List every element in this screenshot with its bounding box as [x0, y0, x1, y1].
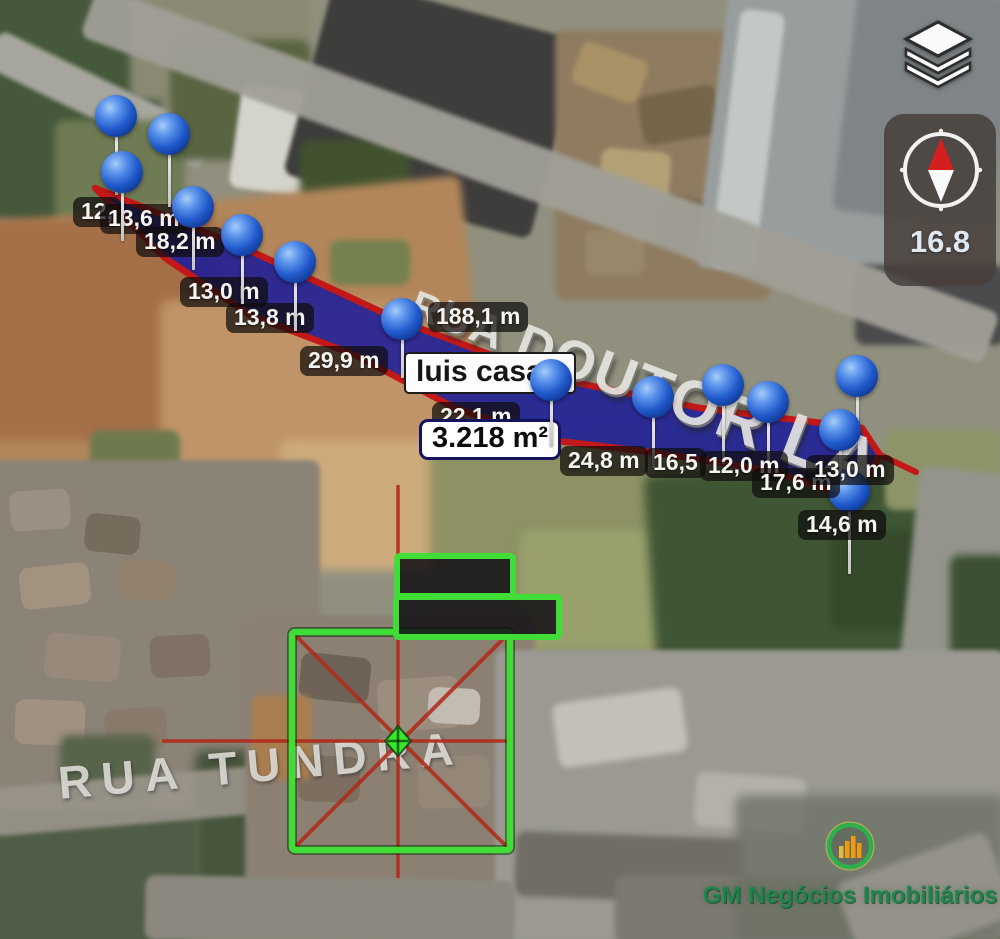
pin-head: [819, 409, 861, 451]
distance-label: 18,2 m: [136, 227, 224, 257]
terrain-patch: [144, 875, 515, 939]
terrain-patch: [83, 512, 142, 556]
watermark-logo-icon: [824, 820, 876, 872]
pin-head: [381, 298, 423, 340]
layers-button[interactable]: [898, 16, 978, 90]
pin-head: [148, 113, 190, 155]
pin-head: [836, 355, 878, 397]
pin-head: [101, 151, 143, 193]
terrain-patch: [330, 240, 410, 285]
pin-head: [95, 95, 137, 137]
compass-bearing: 16.8: [884, 224, 996, 260]
distance-label: 13,0 m: [806, 455, 894, 485]
pin-head: [530, 359, 572, 401]
distance-label: 14,6 m: [798, 510, 886, 540]
terrain-patch: [119, 559, 176, 602]
distance-label: 24,8 m: [560, 446, 648, 476]
distance-label: 13,8 m: [226, 303, 314, 333]
terrain-patch: [427, 687, 481, 726]
compass-icon: [884, 114, 996, 226]
area-label: 3.218 m²: [419, 419, 561, 460]
distance-label: 29,9 m: [300, 346, 388, 376]
terrain-patch: [9, 488, 72, 532]
watermark-text: GM Negócios Imobiliários: [700, 882, 1000, 910]
pin-head: [274, 241, 316, 283]
terrain-patch: [18, 561, 92, 610]
terrain-patch: [298, 651, 372, 704]
distance-label: 188,1 m: [428, 302, 528, 332]
pin-head: [221, 214, 263, 256]
compass-widget[interactable]: 16.8: [884, 114, 996, 286]
watermark: GM Negócios Imobiliários: [700, 820, 1000, 910]
pin-head: [747, 381, 789, 423]
terrain-patch: [43, 632, 122, 683]
satellite-map-canvas[interactable]: RUA DOUTOR LA RUA TUNDRA GM Negócios Imo…: [0, 0, 1000, 939]
pin-head: [172, 186, 214, 228]
pin-head: [702, 364, 744, 406]
pin-head: [632, 376, 674, 418]
terrain-patch: [149, 633, 211, 678]
layers-icon: [898, 16, 978, 90]
distance-label: 16,5: [645, 448, 706, 478]
